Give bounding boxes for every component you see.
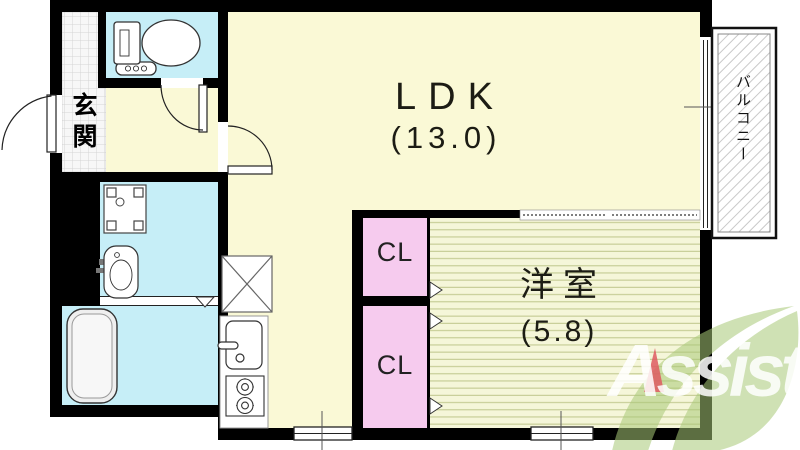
ldk-size-label: (13.0) (336, 122, 556, 153)
entrance-door (2, 95, 56, 152)
wall-column-upper (218, 0, 228, 122)
western-room-label: 洋室 (468, 268, 658, 302)
wall-western-top (352, 210, 520, 218)
western-room-sliding-door (520, 210, 700, 220)
balcony-label: バルコニー (735, 74, 750, 224)
kitchen-counter (218, 316, 268, 428)
floor-plan-image: Assist LDK (13.0) 洋室 (5.8) CL CL 玄関 バルコニ… (0, 0, 800, 450)
wall-closet-divider (352, 296, 430, 306)
wall-left-upper (50, 0, 62, 95)
wall-bath-bottom (50, 405, 230, 417)
washing-machine-pan-icon (104, 185, 146, 233)
toilet-door-opening (161, 78, 203, 88)
floor-plan-drawing: Assist (0, 0, 800, 450)
wall-toilet-left (98, 12, 106, 78)
wall-top (50, 0, 712, 12)
ldk-label: LDK (340, 78, 560, 116)
wall-closet-left (352, 210, 363, 428)
bathtub-icon (67, 309, 117, 403)
closet-lower-label: CL (363, 352, 427, 379)
wall-left-lower (50, 153, 62, 417)
wall-shaft (62, 182, 100, 306)
western-room-size-label: (5.8) (464, 317, 654, 347)
gas-stove-icon (226, 376, 264, 416)
closet-upper-label: CL (363, 239, 427, 266)
wall-right-upper (700, 0, 712, 37)
refrigerator-space-icon (222, 256, 272, 312)
hall-door-opening (218, 122, 228, 172)
entrance-label: 玄関 (70, 92, 95, 182)
